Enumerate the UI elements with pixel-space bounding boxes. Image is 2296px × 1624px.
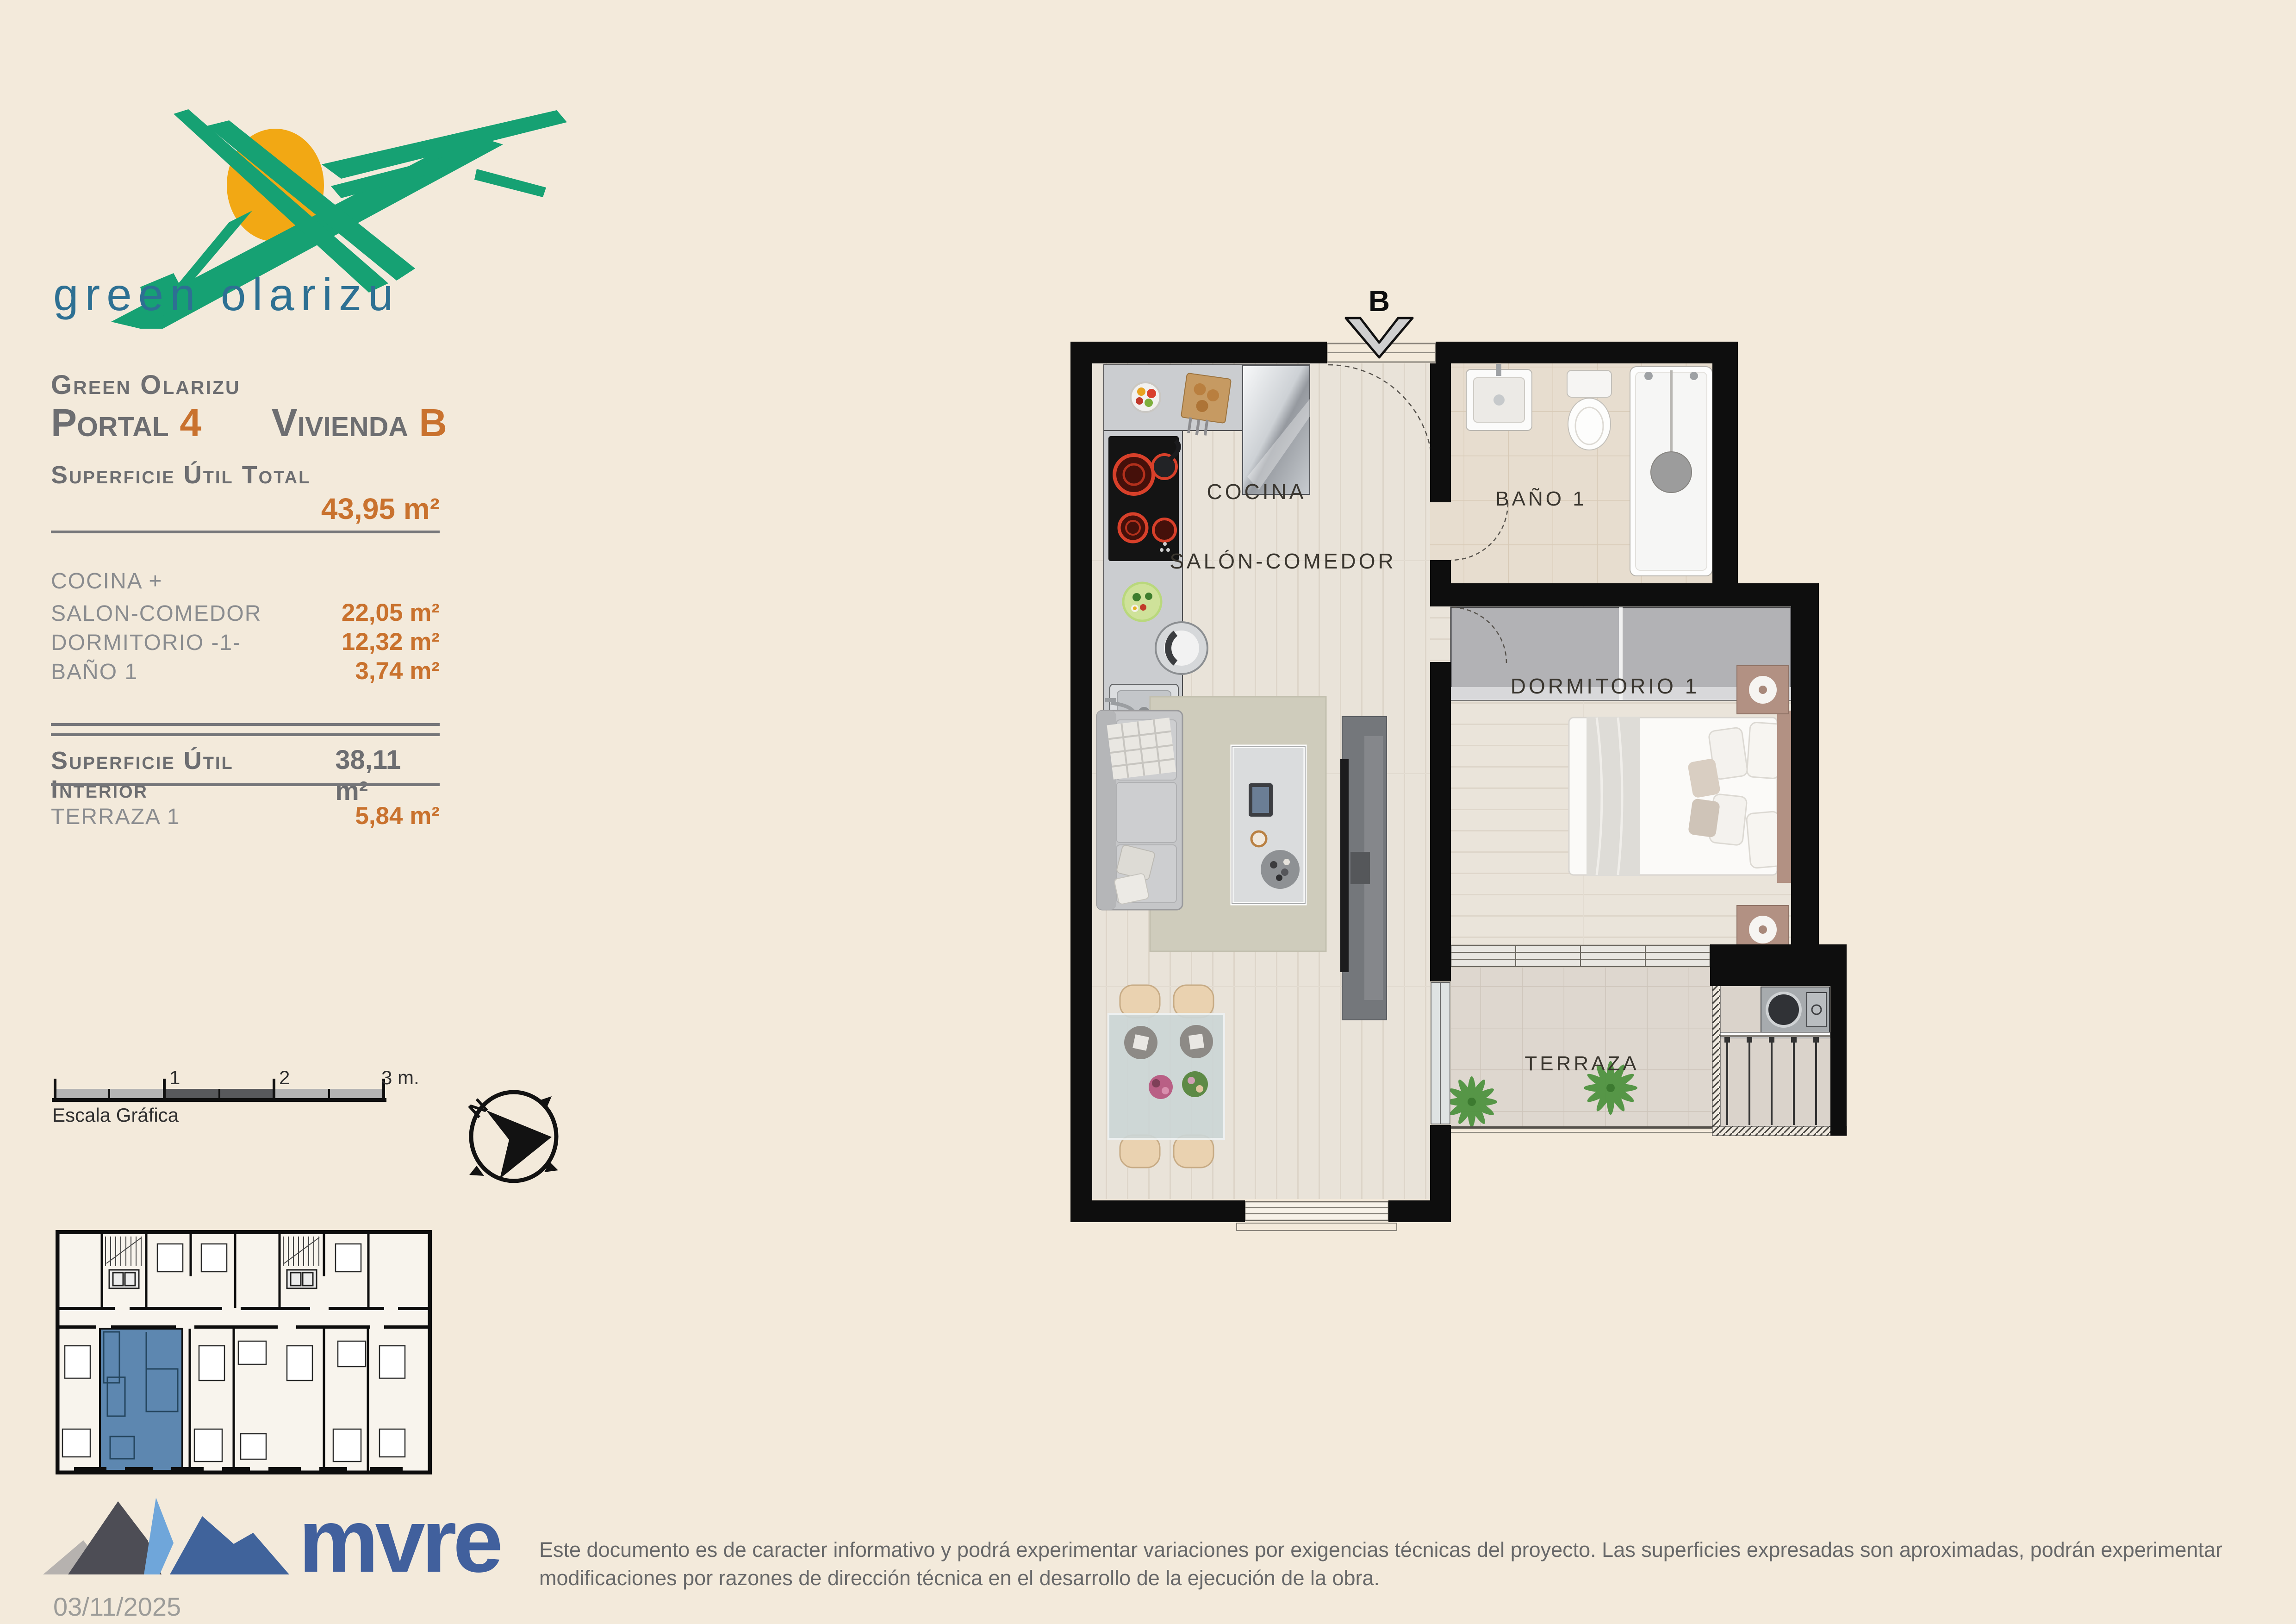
room-value: 12,32 m² — [342, 628, 440, 656]
compass-icon: N — [463, 1088, 565, 1190]
terrace-door — [1431, 982, 1450, 1124]
interior-label: Superficie Útil Interior — [51, 746, 335, 804]
portal-number: 4 — [180, 401, 201, 444]
mountain-icon — [144, 1498, 174, 1574]
kitchen-appliance — [1156, 622, 1207, 674]
washing-machine — [1761, 987, 1829, 1032]
interior-area-row: Superficie Útil Interior 38,11 m² — [51, 744, 440, 806]
brand-logo-text: green olarizu — [53, 269, 400, 320]
sofa — [1097, 711, 1182, 910]
disclaimer-text: Este documento es de caracter informativ… — [539, 1536, 2265, 1593]
room-label-terraza: TERRAZA — [1524, 1052, 1639, 1075]
salad-plate — [1123, 583, 1161, 621]
room-label-bano: BAÑO 1 — [1495, 487, 1587, 510]
room-label-cocina: COCINA — [1207, 480, 1307, 504]
decor-tray — [1261, 850, 1300, 889]
toilet — [1567, 370, 1612, 450]
fridge — [1243, 366, 1310, 494]
key-plan — [56, 1230, 432, 1474]
interior-value: 38,11 m² — [335, 744, 440, 806]
dining-chair — [1120, 985, 1160, 1018]
cushion — [1688, 798, 1720, 838]
room-area-row: COCINA + — [51, 568, 440, 594]
project-title: Green Olarizu — [51, 369, 241, 400]
living-window — [1237, 1202, 1397, 1230]
room-area-row: DORMITORIO -1- 12,32 m² — [51, 628, 440, 656]
plan-sheet-page: green olarizu Green Olarizu Portal 4 Viv… — [0, 0, 2296, 1624]
highlighted-unit — [100, 1329, 182, 1471]
room-label: SALON-COMEDOR — [51, 601, 261, 626]
terrace-edge — [1451, 1126, 1712, 1129]
bed — [1569, 711, 1793, 883]
scale-tick-2: 2 — [279, 1067, 290, 1088]
plaid-blanket — [1107, 718, 1176, 780]
divider-line — [51, 723, 440, 726]
terrace-area-row: TERRAZA 1 5,84 m² — [51, 802, 440, 830]
dining-chair — [1174, 985, 1213, 1018]
coffee-table — [1232, 746, 1305, 904]
cup — [1251, 831, 1266, 846]
vivienda-label: Vivienda — [272, 401, 408, 444]
vivienda-letter: B — [419, 401, 447, 444]
room-label: COCINA + — [51, 568, 162, 594]
dining-chair — [1174, 1135, 1213, 1168]
room-value: 3,74 m² — [355, 657, 440, 685]
divider-line — [51, 733, 440, 736]
headboard — [1777, 711, 1793, 883]
scale-tick-1: 1 — [169, 1067, 180, 1088]
tv-unit — [1340, 717, 1387, 1020]
room-label: BAÑO 1 — [51, 659, 138, 685]
bathroom-sink — [1466, 364, 1532, 431]
brand-logo: green olarizu — [35, 69, 590, 329]
terrace-label: TERRAZA 1 — [51, 804, 180, 830]
bedroom-window — [1451, 945, 1710, 967]
date-label: 03/11/2025 — [53, 1592, 181, 1622]
total-area-value: 43,95 m² — [51, 492, 440, 526]
unit-letter-label: B — [1369, 284, 1390, 318]
portal-label: Portal — [51, 401, 169, 444]
divider-line — [51, 783, 440, 786]
scale-bar-label: Escala Gráfica — [52, 1104, 179, 1126]
room-label-dormitorio: DORMITORIO 1 — [1511, 674, 1700, 698]
shower — [1630, 367, 1712, 576]
total-area-label: Superficie Útil Total — [51, 461, 311, 489]
tv-screen — [1340, 759, 1349, 972]
terrace-value: 5,84 m² — [355, 802, 440, 830]
flower-bouquet — [1149, 1075, 1173, 1099]
mvre-logo-text: mvre — [299, 1490, 500, 1581]
blanket — [1587, 717, 1640, 876]
nightstand — [1737, 666, 1789, 714]
dining-chair — [1120, 1135, 1160, 1168]
railing-hatch — [1712, 968, 1720, 1126]
mountain-icon — [170, 1516, 289, 1574]
room-area-row: BAÑO 1 3,74 m² — [51, 657, 440, 685]
fruit-bowl — [1131, 382, 1160, 412]
divider-line — [51, 531, 440, 533]
room-label: DORMITORIO -1- — [51, 630, 241, 656]
cushion — [1114, 873, 1149, 905]
room-area-row: SALON-COMEDOR 22,05 m² — [51, 599, 440, 627]
railing-hatch — [1712, 1126, 1847, 1136]
floor-plan: COCINA SALÓN-COMEDOR BAÑO 1 DORMITORIO 1… — [1064, 278, 1851, 1236]
room-label-salon: SALÓN-COMEDOR — [1170, 549, 1396, 573]
scale-tick-3: 3 m. — [381, 1067, 417, 1088]
cooktop — [1108, 436, 1179, 561]
flower-bouquet — [1182, 1071, 1208, 1097]
room-value: 22,05 m² — [342, 599, 440, 627]
unit-title: Portal 4 Vivienda B — [51, 400, 447, 445]
